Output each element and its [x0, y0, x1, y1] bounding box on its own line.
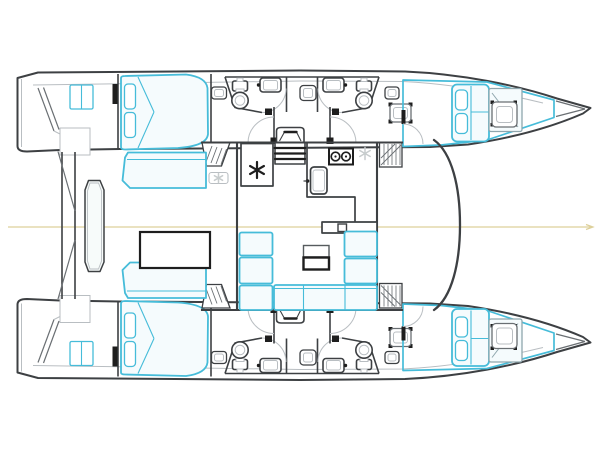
porthole-forward	[385, 87, 399, 99]
companionway-stairs	[275, 128, 305, 165]
floor-plan-canvas	[0, 0, 600, 450]
porthole-aft	[212, 87, 227, 99]
sink	[323, 78, 347, 92]
center-hatch	[300, 86, 316, 101]
stove	[329, 149, 353, 165]
aft-crossbeam	[58, 152, 75, 300]
galley	[304, 143, 371, 223]
catamaran-floor-plan	[0, 0, 600, 450]
cockpit-table	[85, 181, 104, 272]
cockpit-seat-module	[140, 232, 210, 268]
sink	[257, 78, 281, 92]
cockpit-fridge	[209, 173, 228, 184]
salon-table	[304, 246, 330, 270]
cockpit-bench	[123, 153, 207, 189]
stair-hood	[277, 128, 305, 143]
pillow	[456, 114, 468, 134]
hull-top	[18, 71, 591, 189]
foredeck-edge	[434, 140, 460, 310]
salon	[202, 143, 402, 311]
pillow	[125, 113, 136, 138]
bow-hatch	[491, 101, 518, 128]
pillow	[125, 84, 136, 109]
entry-hatched-panel	[380, 143, 403, 168]
aft-cabin	[113, 74, 212, 150]
deck-hatch	[389, 103, 413, 124]
pillow	[456, 90, 468, 110]
door-hinge	[332, 109, 339, 116]
refrigerator	[241, 144, 273, 187]
settee	[240, 232, 378, 311]
door-hinge	[265, 109, 272, 116]
hull-bottom	[18, 263, 591, 381]
transom-platform	[60, 128, 90, 155]
cabin-door	[402, 110, 406, 124]
snowflake-icon	[360, 148, 370, 160]
wardrobe	[70, 85, 93, 109]
cabin-door	[113, 84, 118, 104]
